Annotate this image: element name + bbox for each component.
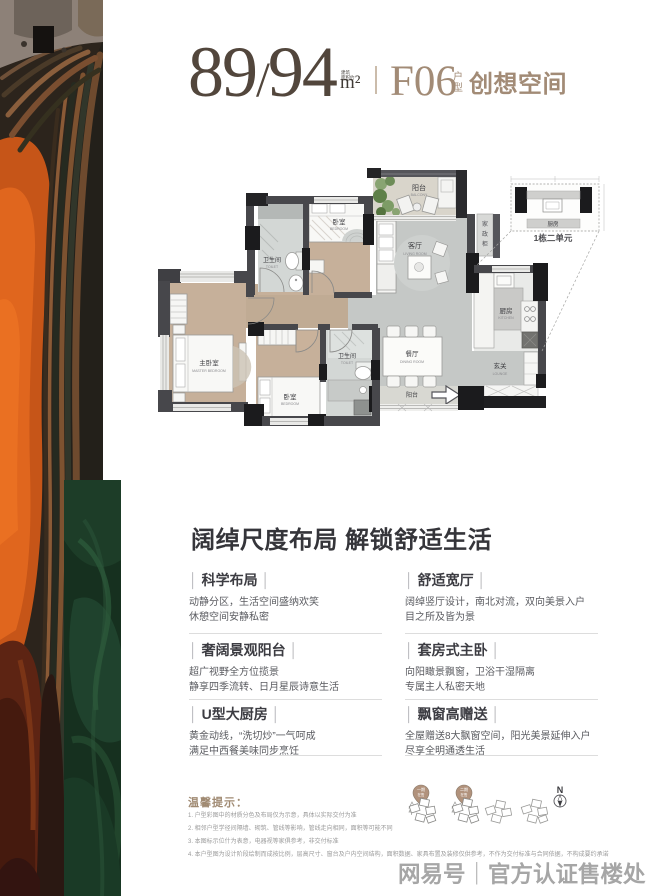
svg-text:TOILET: TOILET: [341, 361, 354, 365]
svg-text:KITCHEN: KITCHEN: [498, 316, 514, 320]
svg-text:玄关: 玄关: [494, 361, 508, 370]
svg-text:BALCONY: BALCONY: [411, 193, 428, 197]
svg-text:柜: 柜: [482, 240, 488, 248]
svg-text:在售: 在售: [461, 792, 469, 797]
svg-text:二期: 二期: [460, 786, 468, 792]
svg-text:在售: 在售: [418, 792, 426, 797]
svg-text:家: 家: [482, 220, 488, 228]
svg-text:主卧室: 主卧室: [199, 358, 219, 367]
svg-text:卫生间: 卫生间: [263, 256, 281, 264]
svg-text:LOUNGE: LOUNGE: [493, 372, 508, 376]
svg-text:1栋二单元: 1栋二单元: [534, 233, 573, 243]
svg-text:TOILET: TOILET: [266, 265, 279, 269]
svg-text:一期: 一期: [417, 786, 425, 792]
svg-text:餐厅: 餐厅: [406, 349, 420, 358]
svg-text:卧室: 卧室: [284, 392, 298, 401]
svg-text:BEDROOM: BEDROOM: [281, 402, 299, 406]
svg-text:BEDROOM: BEDROOM: [330, 227, 348, 231]
svg-text:卫生间: 卫生间: [338, 352, 356, 360]
svg-text:厨房: 厨房: [547, 220, 559, 228]
svg-text:阳台: 阳台: [406, 391, 418, 399]
svg-text:客厅: 客厅: [408, 241, 422, 250]
svg-text:N: N: [557, 785, 564, 795]
svg-text:政: 政: [482, 230, 488, 238]
svg-text:阳台: 阳台: [412, 183, 426, 192]
svg-text:MASTER BEDROOM: MASTER BEDROOM: [192, 369, 226, 373]
svg-text:卧室: 卧室: [333, 217, 347, 226]
svg-text:厨房: 厨房: [500, 306, 513, 315]
svg-text:LIVING ROOM: LIVING ROOM: [403, 252, 426, 256]
svg-text:DINING ROOM: DINING ROOM: [400, 360, 424, 364]
